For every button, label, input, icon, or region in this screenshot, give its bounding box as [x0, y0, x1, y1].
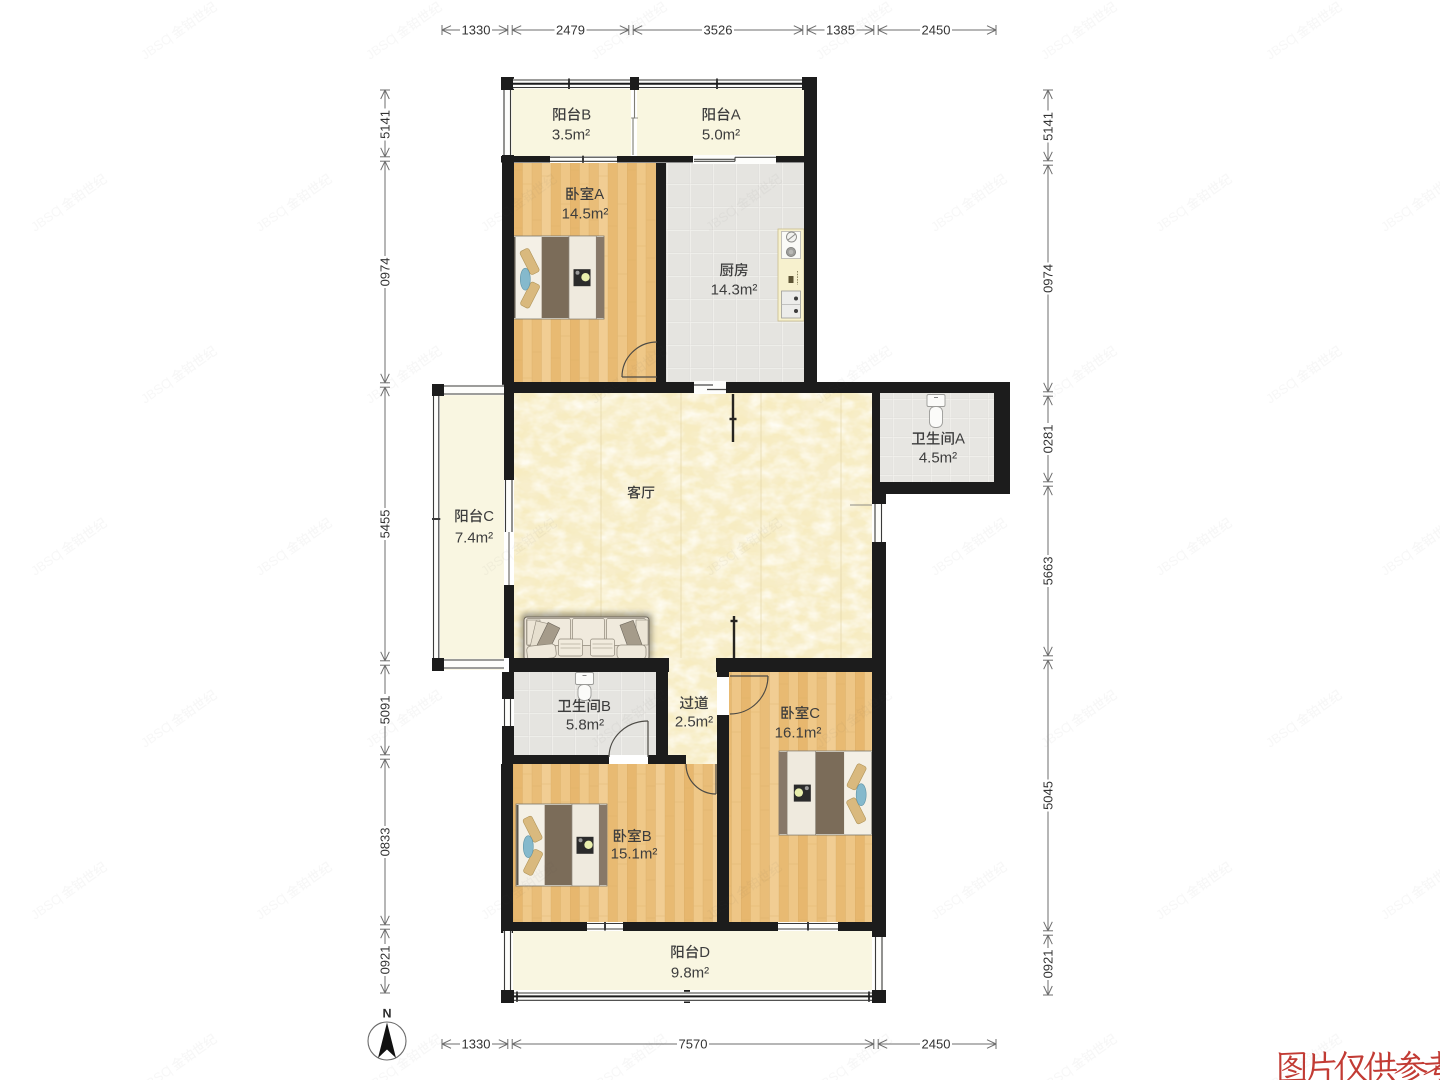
svg-text:5: 5 [378, 510, 393, 517]
svg-text:B: B [642, 829, 652, 845]
svg-text:0: 0 [378, 710, 393, 717]
svg-text:4.5m²: 4.5m² [919, 449, 957, 466]
svg-text:7.4m²: 7.4m² [455, 529, 493, 546]
svg-text:0: 0 [378, 967, 393, 974]
svg-text:A: A [594, 187, 604, 203]
svg-text:9: 9 [378, 960, 393, 967]
svg-text:A: A [731, 108, 741, 124]
svg-text:14.3m²: 14.3m² [711, 281, 758, 298]
svg-text:7570: 7570 [679, 1037, 708, 1052]
svg-text:3526: 3526 [704, 23, 733, 38]
svg-text:4: 4 [1041, 119, 1056, 126]
svg-text:2450: 2450 [922, 23, 951, 38]
svg-text:0: 0 [1041, 286, 1056, 293]
svg-text:C: C [809, 706, 820, 722]
svg-text:0: 0 [378, 279, 393, 286]
svg-text:0: 0 [1041, 446, 1056, 453]
svg-text:5: 5 [1041, 134, 1056, 141]
svg-text:A: A [955, 432, 965, 448]
svg-text:2450: 2450 [922, 1037, 951, 1052]
svg-text:4: 4 [1041, 264, 1056, 271]
svg-text:0: 0 [1041, 795, 1056, 802]
svg-text:2.5m²: 2.5m² [675, 713, 713, 730]
svg-text:4: 4 [1041, 788, 1056, 795]
svg-text:8: 8 [378, 842, 393, 849]
svg-text:14.5m²: 14.5m² [562, 205, 609, 222]
svg-text:5.0m²: 5.0m² [702, 126, 740, 143]
svg-text:1: 1 [378, 124, 393, 131]
svg-text:9.8m²: 9.8m² [671, 964, 709, 981]
svg-text:6: 6 [1041, 571, 1056, 578]
svg-text:5: 5 [378, 132, 393, 139]
svg-text:1: 1 [1041, 950, 1056, 957]
svg-text:1: 1 [1041, 425, 1056, 432]
svg-text:1330: 1330 [462, 1037, 491, 1052]
svg-text:8: 8 [1041, 432, 1056, 439]
svg-text:15.1m²: 15.1m² [611, 845, 658, 862]
svg-text:5: 5 [378, 531, 393, 538]
svg-text:1: 1 [1041, 126, 1056, 133]
svg-text:B: B [601, 699, 611, 715]
svg-text:3: 3 [378, 828, 393, 835]
svg-text:5: 5 [378, 517, 393, 524]
svg-text:1: 1 [378, 110, 393, 117]
svg-text:0: 0 [1041, 971, 1056, 978]
svg-text:2: 2 [1041, 439, 1056, 446]
svg-text:1: 1 [378, 696, 393, 703]
svg-text:D: D [699, 945, 710, 961]
svg-text:0: 0 [378, 849, 393, 856]
svg-text:5: 5 [1041, 803, 1056, 810]
svg-text:9: 9 [378, 272, 393, 279]
svg-text:7: 7 [1041, 271, 1056, 278]
svg-text:C: C [483, 509, 494, 525]
svg-text:3: 3 [1041, 557, 1056, 564]
svg-text:1330: 1330 [462, 23, 491, 38]
svg-text:9: 9 [1041, 964, 1056, 971]
svg-text:9: 9 [1041, 278, 1056, 285]
svg-text:9: 9 [378, 703, 393, 710]
svg-text:B: B [581, 108, 591, 124]
svg-text:6: 6 [1041, 564, 1056, 571]
svg-text:7: 7 [378, 265, 393, 272]
svg-text:4: 4 [378, 258, 393, 265]
svg-text:3: 3 [378, 835, 393, 842]
svg-text:5: 5 [1041, 578, 1056, 585]
svg-text:2: 2 [1041, 957, 1056, 964]
svg-text:1: 1 [1041, 112, 1056, 119]
svg-text:3.5m²: 3.5m² [552, 126, 590, 143]
svg-text:4: 4 [378, 117, 393, 124]
svg-text:4: 4 [378, 524, 393, 531]
svg-text:2: 2 [378, 953, 393, 960]
svg-text:2479: 2479 [556, 23, 585, 38]
svg-text:1: 1 [378, 946, 393, 953]
svg-text:5: 5 [1041, 781, 1056, 788]
